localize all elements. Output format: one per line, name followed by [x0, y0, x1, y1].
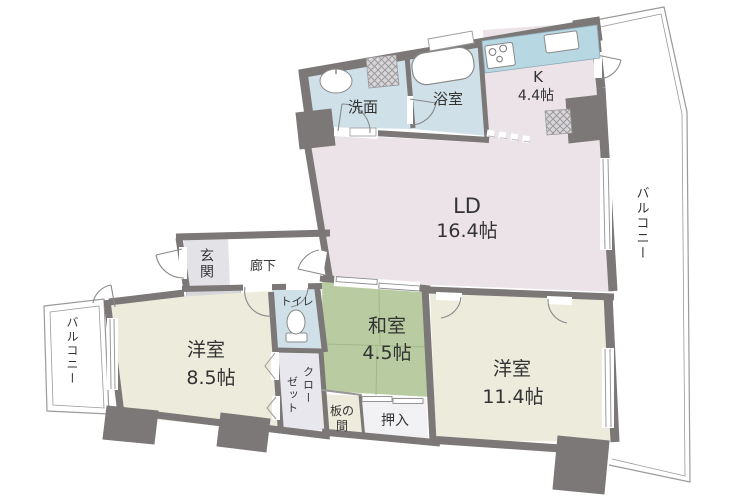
label-japanese-size: 4.5帖 [362, 342, 411, 364]
label-western-1: 洋室 [187, 339, 225, 361]
floorplan: 洗面 浴室 K 4.4帖 LD 16.4帖 玄関 廊下 トイレ 洋室 8.5帖 … [0, 0, 750, 500]
pillar [296, 109, 335, 149]
pillar [103, 406, 158, 444]
label-kitchen: K [533, 68, 544, 86]
label-japanese: 和室 [368, 315, 406, 337]
room-hallway-floor [228, 234, 329, 290]
label-balcony-right: バルコニー [634, 186, 650, 261]
label-closet-col1: クロー [302, 366, 315, 405]
label-washroom: 洗面 [348, 98, 378, 116]
label-futon-closet: 押入 [381, 413, 409, 429]
kitchen-sink-icon [544, 31, 579, 53]
floorplan-drawing: 洗面 浴室 K 4.4帖 LD 16.4帖 玄関 廊下 トイレ 洋室 8.5帖 … [0, 0, 750, 500]
label-balcony-left: バルコニー [65, 316, 79, 386]
label-wood-floor-2: 間 [336, 419, 348, 433]
label-closet-col2: ゼット [286, 376, 299, 415]
window [602, 348, 614, 428]
window [107, 318, 118, 390]
label-western-2-size: 11.4帖 [482, 386, 543, 408]
label-ld-size: 16.4帖 [436, 220, 497, 242]
label-bath: 浴室 [433, 90, 463, 108]
label-western-1-size: 8.5帖 [186, 367, 235, 389]
window [600, 158, 612, 250]
label-wood-floor-1: 板の [330, 404, 354, 418]
fridge-space-hatch [545, 109, 572, 135]
washer-space-hatch [366, 55, 399, 88]
label-kitchen-size: 4.4帖 [518, 88, 554, 104]
label-toilet: トイレ [281, 295, 314, 308]
pillar [217, 413, 270, 452]
pillar [566, 95, 604, 143]
stove-icon [485, 42, 516, 69]
label-hallway: 廊下 [250, 258, 276, 274]
sink-icon [320, 69, 352, 93]
label-entrance: 玄関 [198, 247, 214, 280]
pillar [553, 436, 609, 494]
door-leaf [350, 128, 376, 136]
label-western-2: 洋室 [493, 358, 531, 380]
label-ld: LD [453, 194, 481, 218]
